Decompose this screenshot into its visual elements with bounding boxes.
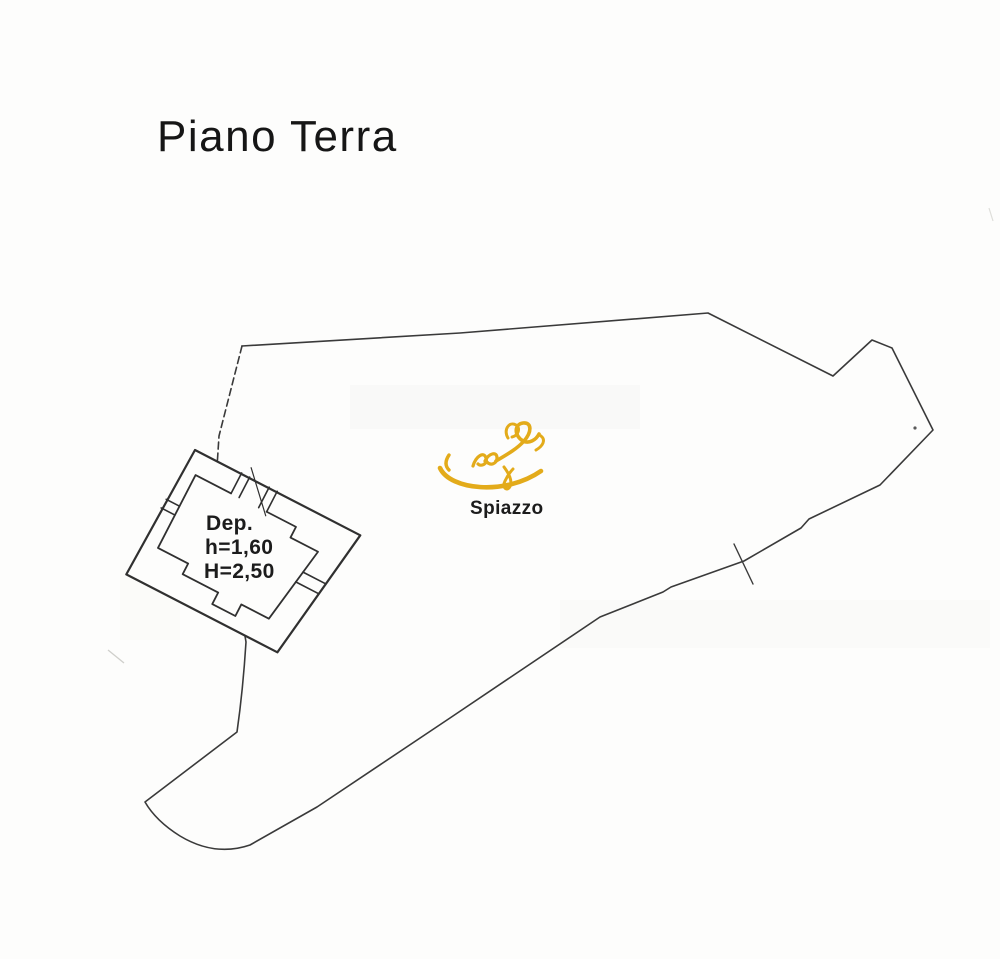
building-height-minor: h=1,60 [205,536,273,559]
scanned-plan-page: Piano Terra Dep. h=1,60 H=2,50 Spiazzo [0,0,1000,959]
building-height-major: H=2,50 [204,560,275,583]
plan-drawing: Piano Terra Dep. h=1,60 H=2,50 Spiazzo [0,0,1000,959]
signature-swoosh [440,468,541,487]
scan-dot [913,426,916,429]
parcel-boundary-upper-segment [217,346,242,467]
page-title: Piano Terra [157,112,398,161]
scan-speck [108,650,124,663]
scan-band [350,385,640,429]
scan-speck [989,208,993,221]
area-label: Spiazzo [470,498,544,519]
signature-stroke [446,455,449,470]
signature-scribble-icon [440,423,543,489]
building-label: Dep. [206,512,253,535]
